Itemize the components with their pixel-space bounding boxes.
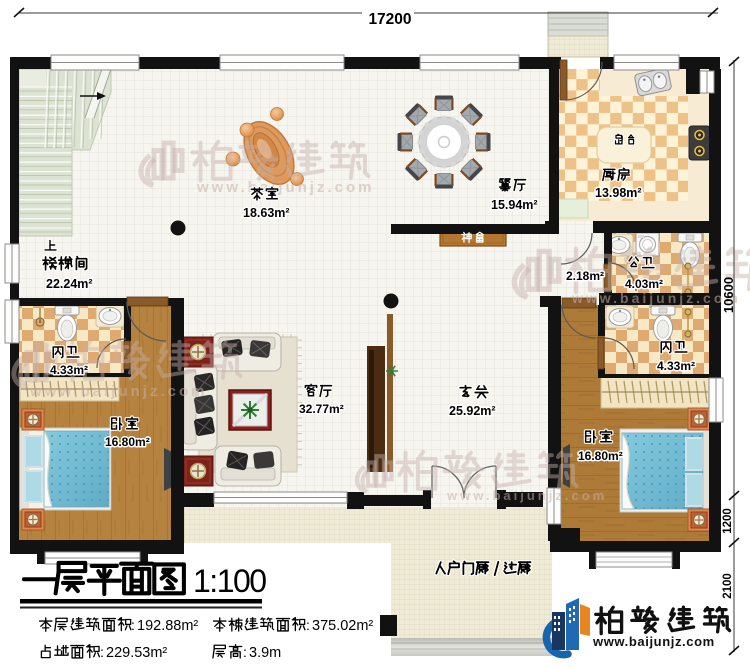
- svg-text:www.baijunjz.com: www.baijunjz.com: [196, 179, 374, 196]
- svg-text:4.03m²: 4.03m²: [625, 277, 663, 291]
- svg-text:www.baijunjz.com: www.baijunjz.com: [29, 383, 207, 400]
- svg-text:2100: 2100: [722, 573, 734, 599]
- svg-text:17200: 17200: [368, 11, 411, 28]
- svg-text:www.baijunjz.com: www.baijunjz.com: [592, 634, 715, 649]
- svg-text:2.18m²: 2.18m²: [566, 269, 604, 283]
- svg-text:375.02m²: 375.02m²: [312, 618, 373, 634]
- svg-text::: :: [306, 617, 310, 633]
- svg-text::: :: [131, 617, 135, 633]
- svg-text:4.33m²: 4.33m²: [657, 359, 695, 373]
- svg-text:16.80m²: 16.80m²: [578, 449, 623, 463]
- svg-text:25.92m²: 25.92m²: [449, 404, 496, 418]
- svg-text:32.77m²: 32.77m²: [299, 402, 344, 416]
- svg-text:3.9m: 3.9m: [249, 645, 281, 661]
- svg-text:1200: 1200: [722, 508, 734, 534]
- svg-text::: :: [243, 644, 247, 660]
- svg-text::: :: [100, 644, 104, 660]
- svg-text:18.63m²: 18.63m²: [243, 206, 290, 220]
- svg-text:13.98m²: 13.98m²: [595, 186, 642, 200]
- svg-text:www.baijunjz.com: www.baijunjz.com: [571, 290, 741, 306]
- svg-text:10600: 10600: [721, 277, 736, 313]
- svg-text:22.24m²: 22.24m²: [46, 277, 93, 291]
- svg-text:16.80m²: 16.80m²: [105, 435, 150, 449]
- svg-text:4.33m²: 4.33m²: [50, 363, 88, 377]
- svg-text:www.baijunjz.com: www.baijunjz.com: [446, 488, 607, 503]
- svg-text:192.88m²: 192.88m²: [137, 618, 198, 634]
- svg-text:15.94m²: 15.94m²: [491, 198, 538, 212]
- svg-text:229.53m²: 229.53m²: [106, 645, 167, 661]
- svg-text:1:100: 1:100: [193, 563, 266, 599]
